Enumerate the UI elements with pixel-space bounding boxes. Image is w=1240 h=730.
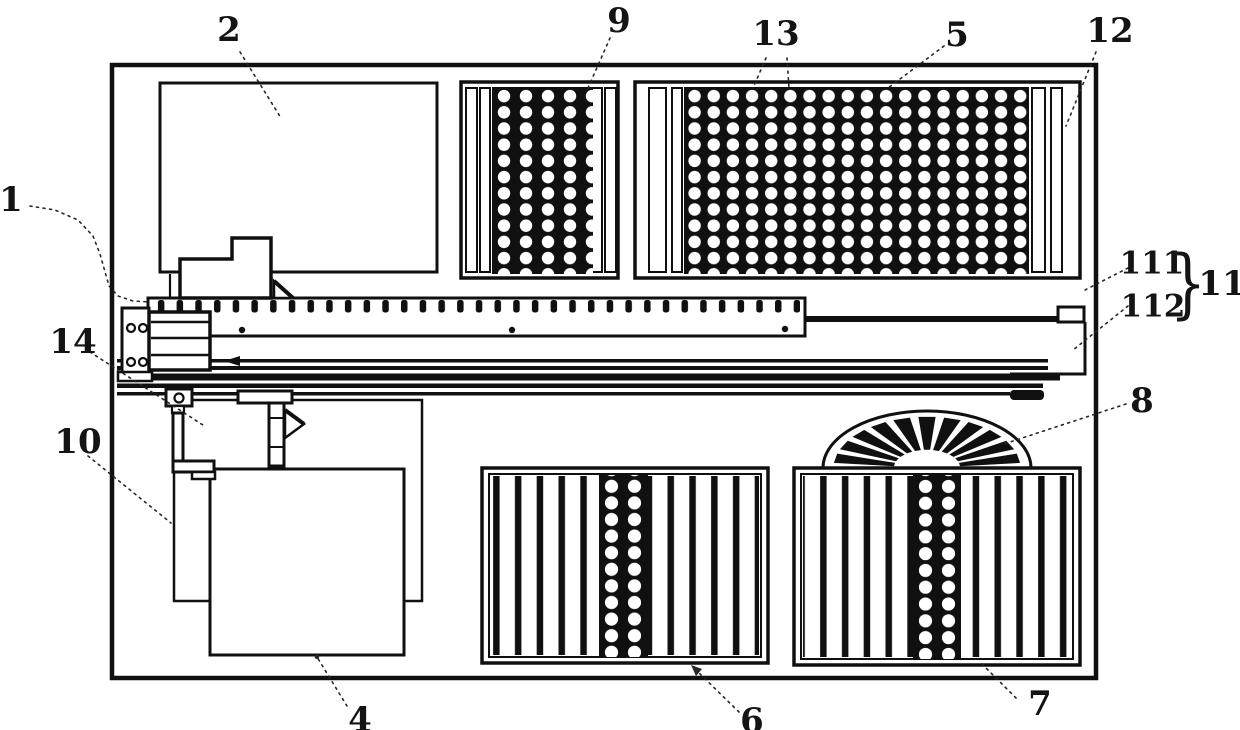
callout-14: 14 [49, 325, 96, 359]
brace-111-112: } [1170, 249, 1206, 317]
callout-13: 13 [752, 17, 799, 51]
module-4-plate [210, 469, 404, 655]
callout-8: 8 [1130, 384, 1154, 418]
rack-9 [461, 82, 618, 278]
callout-1: 1 [0, 183, 23, 217]
callout-6: 6 [740, 704, 764, 730]
module-2-plate [160, 83, 437, 272]
figure-canvas: 129135121111121181410467} [0, 0, 1240, 730]
rack-7 [794, 468, 1080, 665]
machine-drawing [0, 0, 1240, 730]
callout-5: 5 [945, 18, 969, 52]
callout-2: 2 [217, 13, 241, 47]
callout-10: 10 [54, 425, 101, 459]
callout-12: 12 [1086, 14, 1133, 48]
rack-6 [482, 468, 768, 663]
callout-4: 4 [348, 703, 372, 730]
rack-13-5-12 [635, 82, 1080, 278]
callout-7: 7 [1028, 687, 1052, 721]
callout-9: 9 [607, 4, 631, 38]
